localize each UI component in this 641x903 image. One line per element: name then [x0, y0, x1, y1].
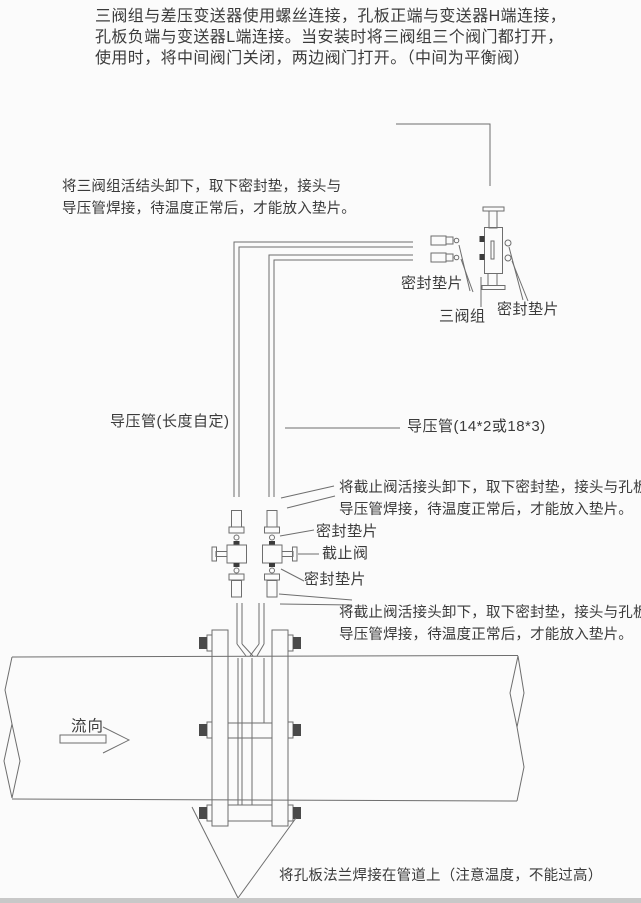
bolt-head: [293, 637, 301, 649]
bottom-bar: [482, 286, 505, 290]
orifice-plate-band: [228, 723, 272, 738]
stop-valve-left: [212, 511, 247, 598]
note-stop-valve-upper-line2: 导压管焊接，待温度正常后，才能放入垫片。: [339, 499, 641, 521]
pipe-break-left-diamond: [4, 724, 20, 798]
stop-valves-drawing: [212, 511, 297, 598]
note-stop-valve-lower-line2: 导压管焊接，待温度正常后，才能放入垫片。: [339, 624, 641, 646]
impulse-pipes-drawing: [234, 242, 413, 497]
transmitter-manifold-drawing: [480, 207, 512, 290]
handle-stem: [489, 211, 497, 228]
port-square-upper: [480, 236, 485, 242]
gasket-ring: [234, 535, 239, 540]
flange-plate-right: [272, 630, 288, 826]
note-top-line2: 孔板负端与变送器L端连接。当安装时将三阀组三个阀门都打开，: [95, 27, 566, 48]
top-connector-line: [396, 124, 490, 186]
bottom-stem: [488, 274, 497, 286]
bolt-head: [293, 807, 301, 819]
note-stop-valve-lower-line1: 将截止阀活接头卸下，取下密封垫，接头与孔板: [339, 602, 641, 624]
valve-handle: [216, 552, 227, 557]
note-manifold-line2: 导压管焊接，待温度正常后，才能放入垫片。: [62, 198, 356, 220]
gasket-ring: [270, 568, 275, 573]
label-flow-direction: 流向: [71, 714, 104, 736]
gasket-ring-right-upper: [505, 240, 511, 246]
port-square-lower: [480, 254, 485, 260]
note-top-line1: 三阀组与差压变送器使用螺丝连接，孔板正端与变送器H端连接，: [95, 6, 566, 27]
installation-diagram-page: 三阀组与差压变送器使用螺丝连接，孔板正端与变送器H端连接， 孔板负端与变送器L端…: [0, 0, 641, 903]
flange-plate-left: [212, 630, 228, 826]
gasket-ring-left-lower: [454, 255, 459, 260]
label-gasket-right: 密封垫片: [497, 302, 559, 318]
gasket-ring: [270, 535, 275, 540]
note-stop-valve-upper: 将截止阀活接头卸下，取下密封垫，接头与孔板 导压管焊接，待温度正常后，才能放入垫…: [339, 477, 641, 521]
scan-edge-artifact: [0, 898, 641, 903]
bolt-head: [199, 637, 207, 649]
manifold-slot: [491, 241, 494, 259]
gasket-ring: [234, 568, 239, 573]
note-manifold: 将三阀组活结头卸下，取下密封垫，接头与 导压管焊接，待温度正常后，才能放入垫片。: [62, 176, 356, 220]
pipe-break-left: [5, 657, 12, 724]
handle-top-bar: [483, 207, 504, 211]
flange-bolts: [199, 635, 301, 821]
union-fittings-drawing: [431, 236, 459, 262]
bolt-head: [199, 724, 207, 736]
valve-body: [263, 545, 283, 563]
gasket-ring-left-upper: [454, 238, 459, 243]
diagram-canvas: [0, 0, 641, 903]
label-impulse-pipe-left: 导压管(长度自定): [110, 414, 230, 430]
pipe-break-right-diamond: [510, 656, 524, 727]
pipe-break-right: [517, 727, 524, 801]
note-top-line3: 使用时，将中间阀门关闭，两边阀门打开。（中间为平衡阀）: [95, 48, 566, 69]
stop-valve-right: [263, 511, 298, 598]
gasket-ring-right-lower: [505, 255, 511, 261]
note-bottom: 将孔板法兰焊接在管道上（注意温度，不能过高）: [279, 865, 602, 887]
orifice-flange-drawing: [199, 630, 301, 826]
label-stop-valve: 截止阀: [322, 546, 369, 562]
note-stop-valve-upper-line1: 将截止阀活接头卸下，取下密封垫，接头与孔板: [339, 477, 641, 499]
bolt-head: [199, 807, 207, 819]
label-gasket-lower: 密封垫片: [304, 572, 366, 588]
note-top: 三阀组与差压变送器使用螺丝连接，孔板正端与变送器H端连接， 孔板负端与变送器L端…: [95, 6, 566, 69]
bolt-head: [293, 724, 301, 736]
lower-impulse-pipes-drawing: [237, 603, 264, 656]
label-gasket-upper: 密封垫片: [316, 524, 378, 540]
label-three-valve-manifold: 三阀组: [439, 309, 486, 325]
valve-handle: [282, 552, 293, 557]
note-stop-valve-lower: 将截止阀活接头卸下，取下密封垫，接头与孔板 导压管焊接，待温度正常后，才能放入垫…: [339, 602, 641, 646]
valve-body: [227, 545, 247, 563]
bottom-band: [228, 805, 272, 821]
label-gasket-left: 密封垫片: [401, 276, 463, 292]
label-impulse-pipe-right: 导压管(14*2或18*3): [407, 419, 546, 435]
note-manifold-line1: 将三阀组活结头卸下，取下密封垫，接头与: [62, 176, 356, 198]
